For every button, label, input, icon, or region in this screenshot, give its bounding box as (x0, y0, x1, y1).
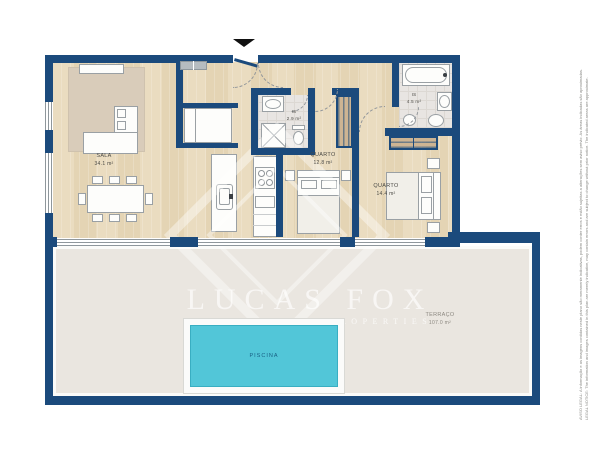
sofa (83, 132, 138, 154)
wall-segment (170, 237, 198, 247)
room-label-is1: IS 2.9 m² (281, 109, 307, 122)
sink-basin (265, 99, 281, 109)
bed-headboard (433, 172, 441, 220)
dining-chair (92, 214, 103, 222)
brand-watermark: LUCAS FOX (48, 283, 572, 317)
bathtub-inner (405, 67, 447, 83)
toilet-tank (292, 125, 305, 130)
wall-segment (251, 88, 291, 95)
terrace-wall (45, 396, 540, 405)
dining-chair (126, 214, 137, 222)
wall-segment (340, 237, 355, 247)
wall-segment (258, 55, 460, 63)
sofa-pillow (117, 121, 126, 130)
legal-aviso: AVISO LEGAL: A informação e as imagens c… (578, 25, 584, 420)
legal-text: AVISO LEGAL: A informação e as imagens c… (578, 25, 589, 420)
window-glazing (45, 102, 53, 130)
sliding-door (198, 239, 340, 246)
wall-segment (392, 62, 399, 107)
wall-segment (276, 150, 283, 237)
dining-chair (109, 214, 120, 222)
floor-plan: LUCAS FOX INTERNATIONAL PROPERTIES PISCI… (0, 0, 600, 450)
wardrobe-divider (413, 136, 414, 150)
pool: PISCINA (183, 318, 345, 394)
entrance-marker-icon (233, 39, 255, 47)
sideboard (79, 64, 124, 74)
dining-chair (78, 193, 86, 205)
bed-pillow (421, 176, 432, 193)
room-label-terraco: TERRAÇO 107.0 m² (412, 312, 468, 327)
dining-chair (109, 176, 120, 184)
room-label-sala: SALA 34.1 m² (71, 153, 137, 168)
faucet-icon (443, 73, 447, 77)
wall-segment (385, 128, 453, 136)
wall-segment (251, 88, 258, 155)
room-label-piscina: PISCINA (249, 353, 278, 359)
legal-notice: LEGAL NOTICE: The information and images… (584, 25, 590, 420)
wall-segment (308, 88, 315, 155)
wall-segment (452, 55, 460, 237)
pool-water: PISCINA (190, 325, 338, 387)
wall-segment (183, 103, 238, 108)
wall-segment (45, 130, 53, 153)
wall-segment (45, 55, 53, 102)
wall-segment (183, 143, 238, 148)
toilet (428, 114, 444, 127)
window-glazing (45, 153, 53, 213)
dining-chair (145, 193, 153, 205)
dining-chair (92, 176, 103, 184)
terrace-wall (448, 232, 540, 243)
room-label-quarto1: QUARTO 12.8 m² (300, 152, 346, 167)
dining-table (87, 185, 144, 213)
wall-segment (45, 213, 53, 240)
dining-chair (126, 176, 137, 184)
nightstand (341, 170, 351, 181)
nightstand (427, 158, 440, 169)
room-label-quarto2: QUARTO 14.4 m² (363, 183, 409, 198)
sink-basin (439, 95, 450, 108)
wall-segment (352, 88, 359, 237)
bed-pillow (421, 197, 432, 214)
daybed-pillow (184, 108, 196, 143)
room-label-is2: IS 4.5 m² (401, 92, 427, 105)
sliding-door (57, 239, 170, 246)
sliding-door (355, 239, 425, 246)
nightstand (427, 222, 440, 233)
vent-block-divider (193, 61, 194, 70)
wardrobe (336, 95, 353, 148)
wall-segment (176, 62, 183, 148)
sofa-pillow (117, 109, 126, 118)
